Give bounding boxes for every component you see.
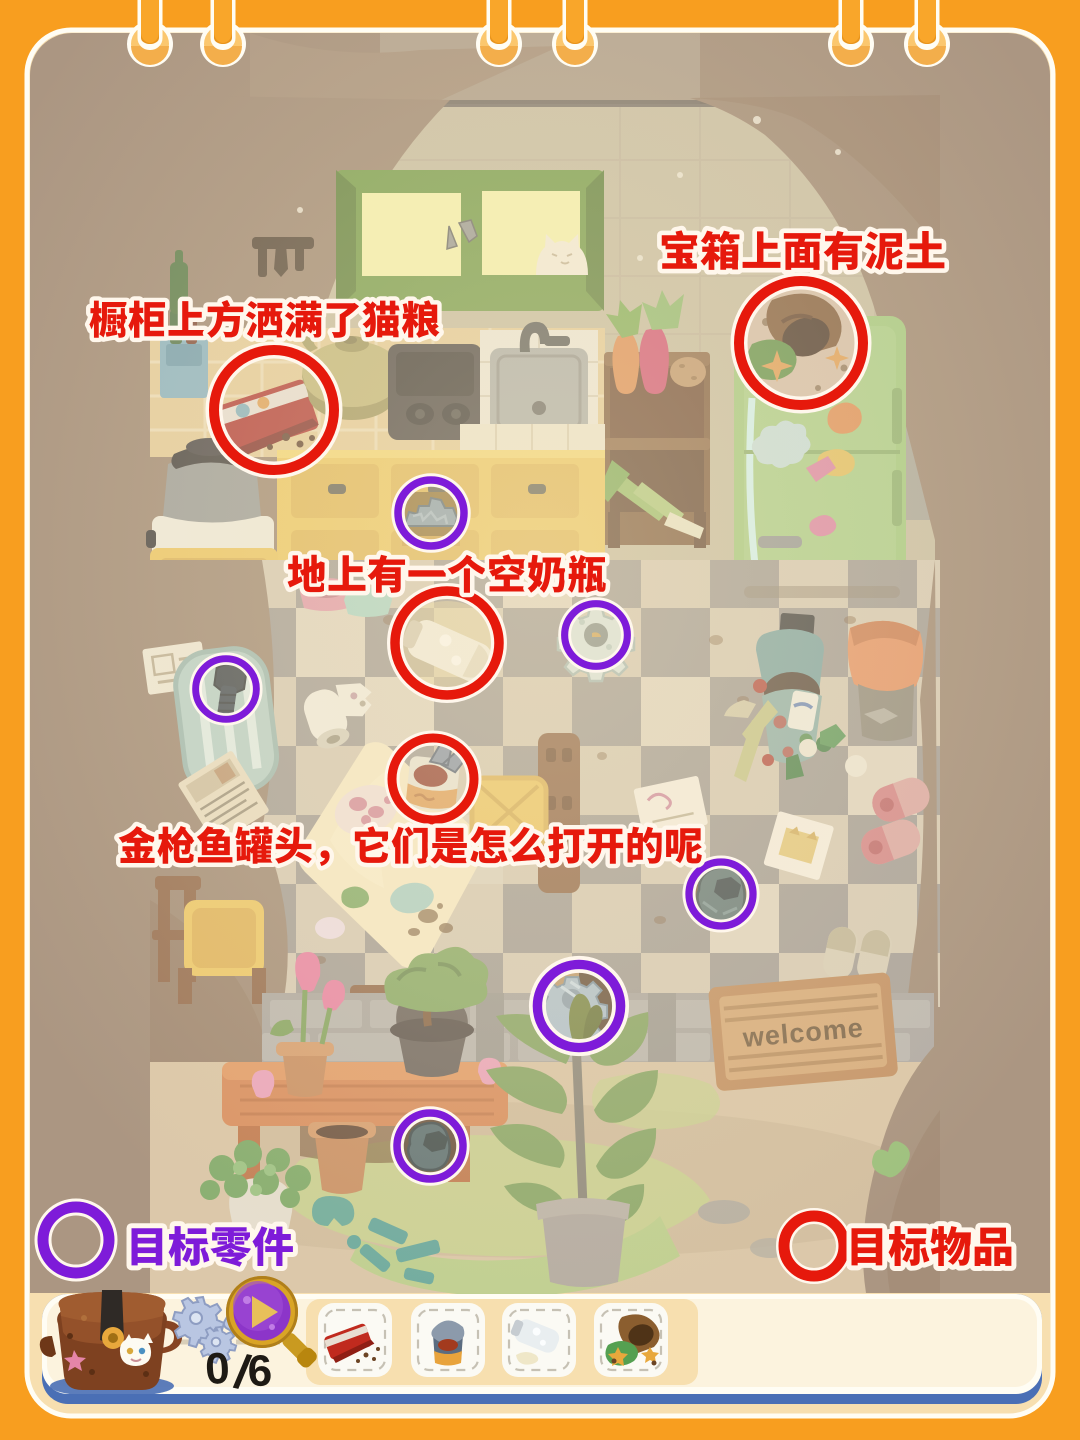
svg-text:0: 0: [204, 1344, 231, 1394]
svg-text:6: 6: [247, 1346, 273, 1396]
